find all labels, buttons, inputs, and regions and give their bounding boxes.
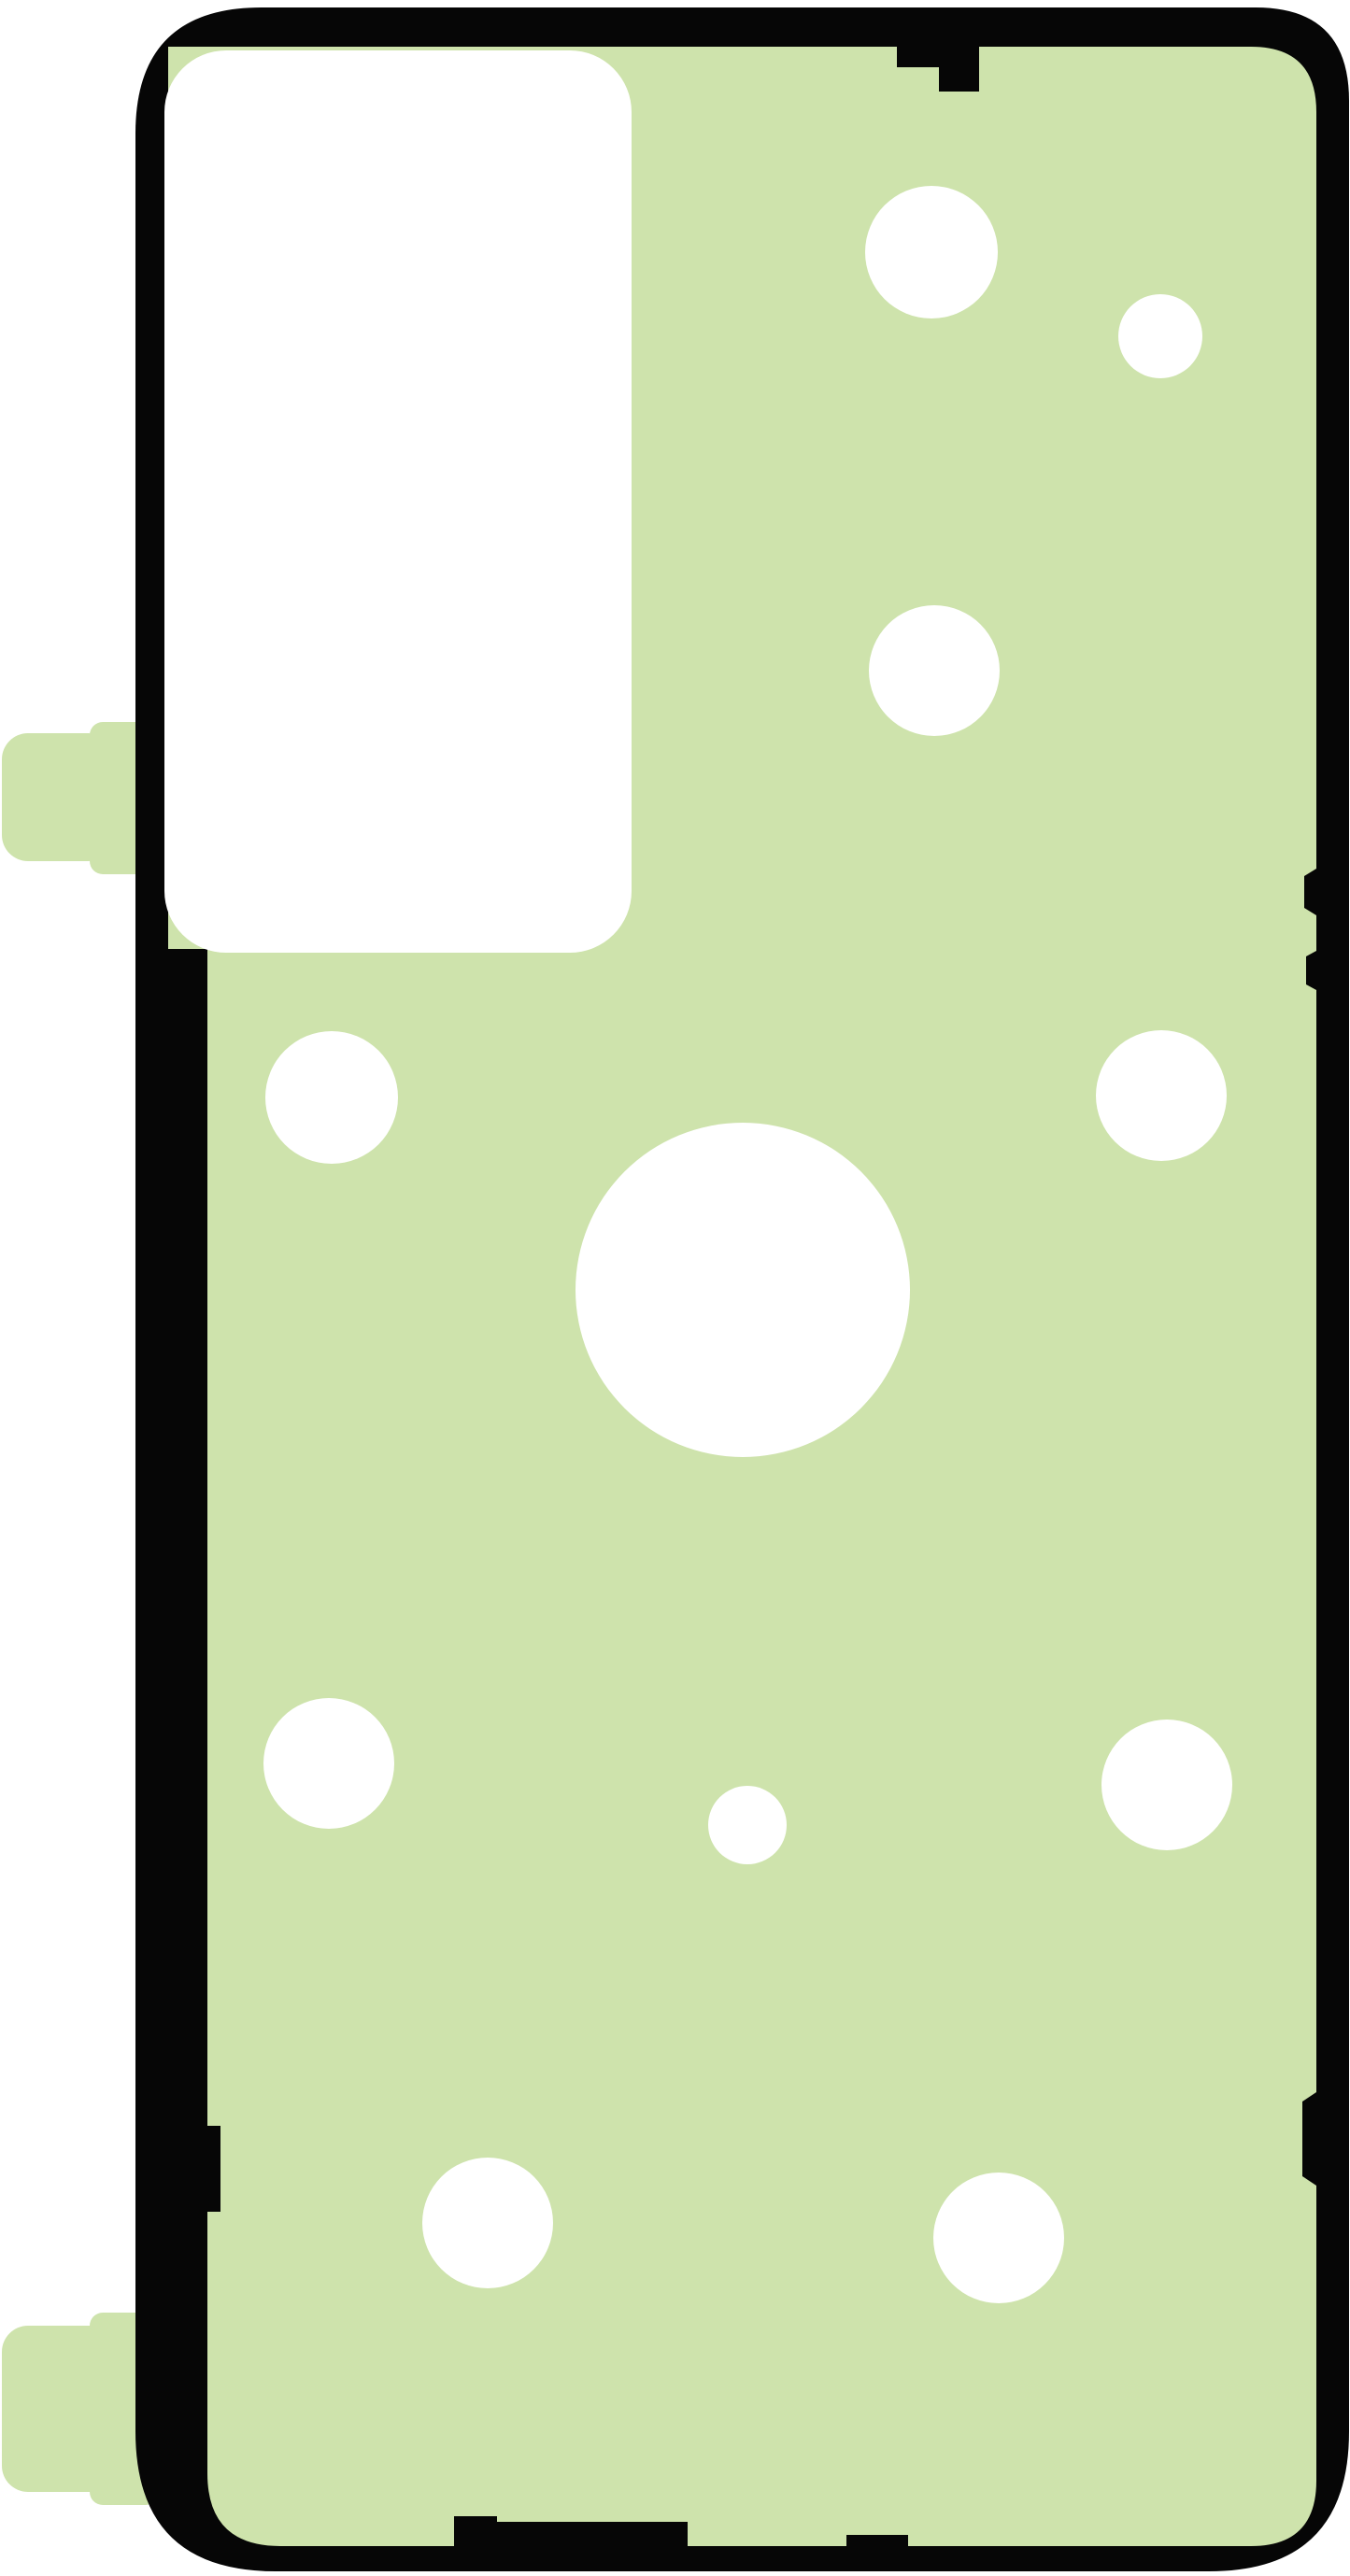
- adhesive-hole: [576, 1123, 910, 1457]
- adhesive-hole: [865, 186, 998, 318]
- adhesive-hole: [422, 2158, 553, 2288]
- pull-tab-lower-body: [2, 2326, 121, 2492]
- adhesive-hole: [933, 2173, 1064, 2303]
- adhesive-hole: [265, 1031, 398, 1164]
- adhesive-hole: [1096, 1030, 1227, 1161]
- adhesive-hole: [1118, 294, 1202, 378]
- adhesive-hole: [869, 605, 1000, 736]
- pull-tab-upper-body: [2, 733, 114, 861]
- camera-cutout: [164, 50, 632, 953]
- adhesive-hole: [708, 1786, 787, 1864]
- adhesive-sticker-image: [0, 0, 1350, 2576]
- adhesive-hole: [1101, 1720, 1232, 1850]
- product-image-canvas: [0, 0, 1350, 2576]
- adhesive-hole: [263, 1698, 394, 1829]
